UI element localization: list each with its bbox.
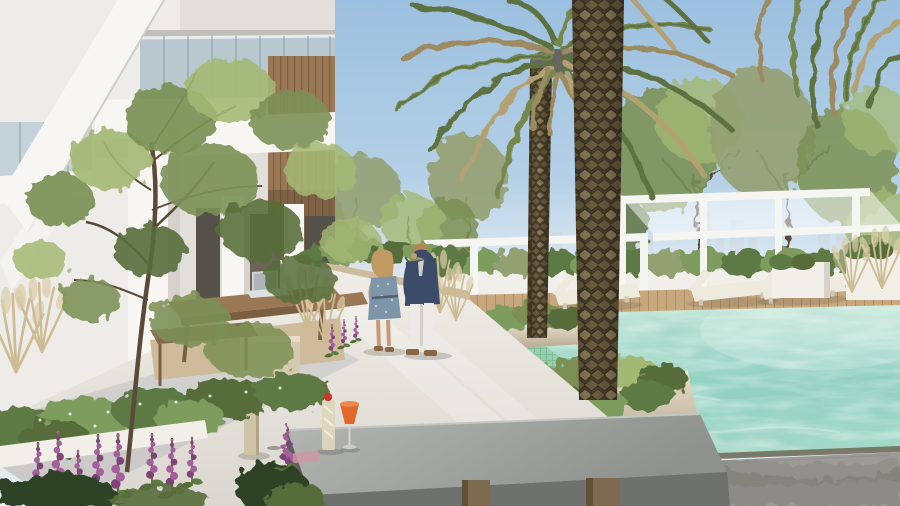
snack-dish: [267, 446, 281, 450]
pool-courtyard-scene: [0, 0, 900, 506]
trousers: [410, 304, 420, 349]
rendering-canvas: [0, 0, 900, 506]
strawberry-garnish: [324, 393, 332, 401]
doorway-recess: [196, 208, 220, 304]
